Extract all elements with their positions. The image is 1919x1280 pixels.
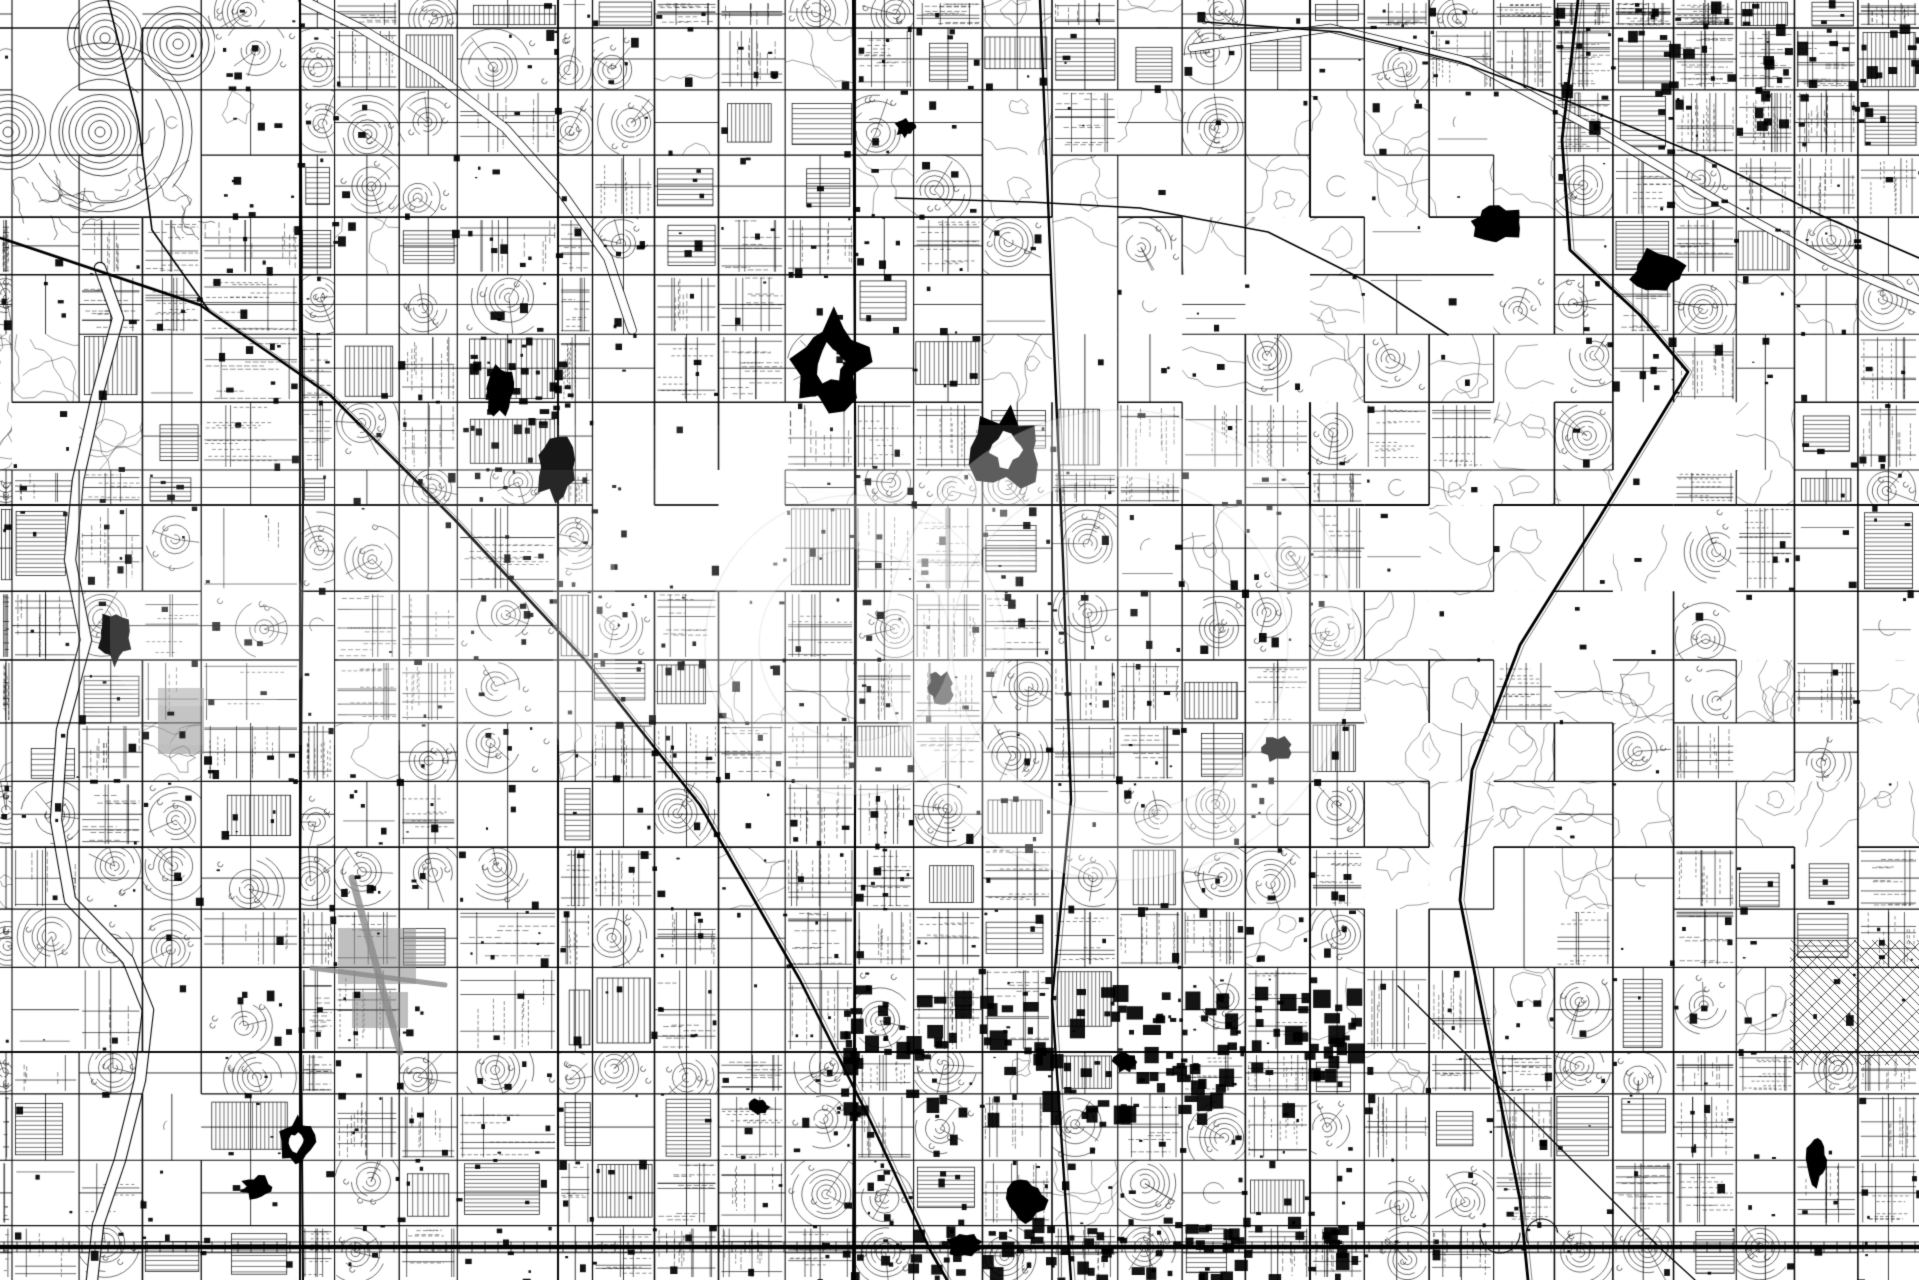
watermark-overlay bbox=[0, 0, 1919, 1280]
map-stage: Black and white vector street map of a l… bbox=[0, 0, 1919, 1280]
